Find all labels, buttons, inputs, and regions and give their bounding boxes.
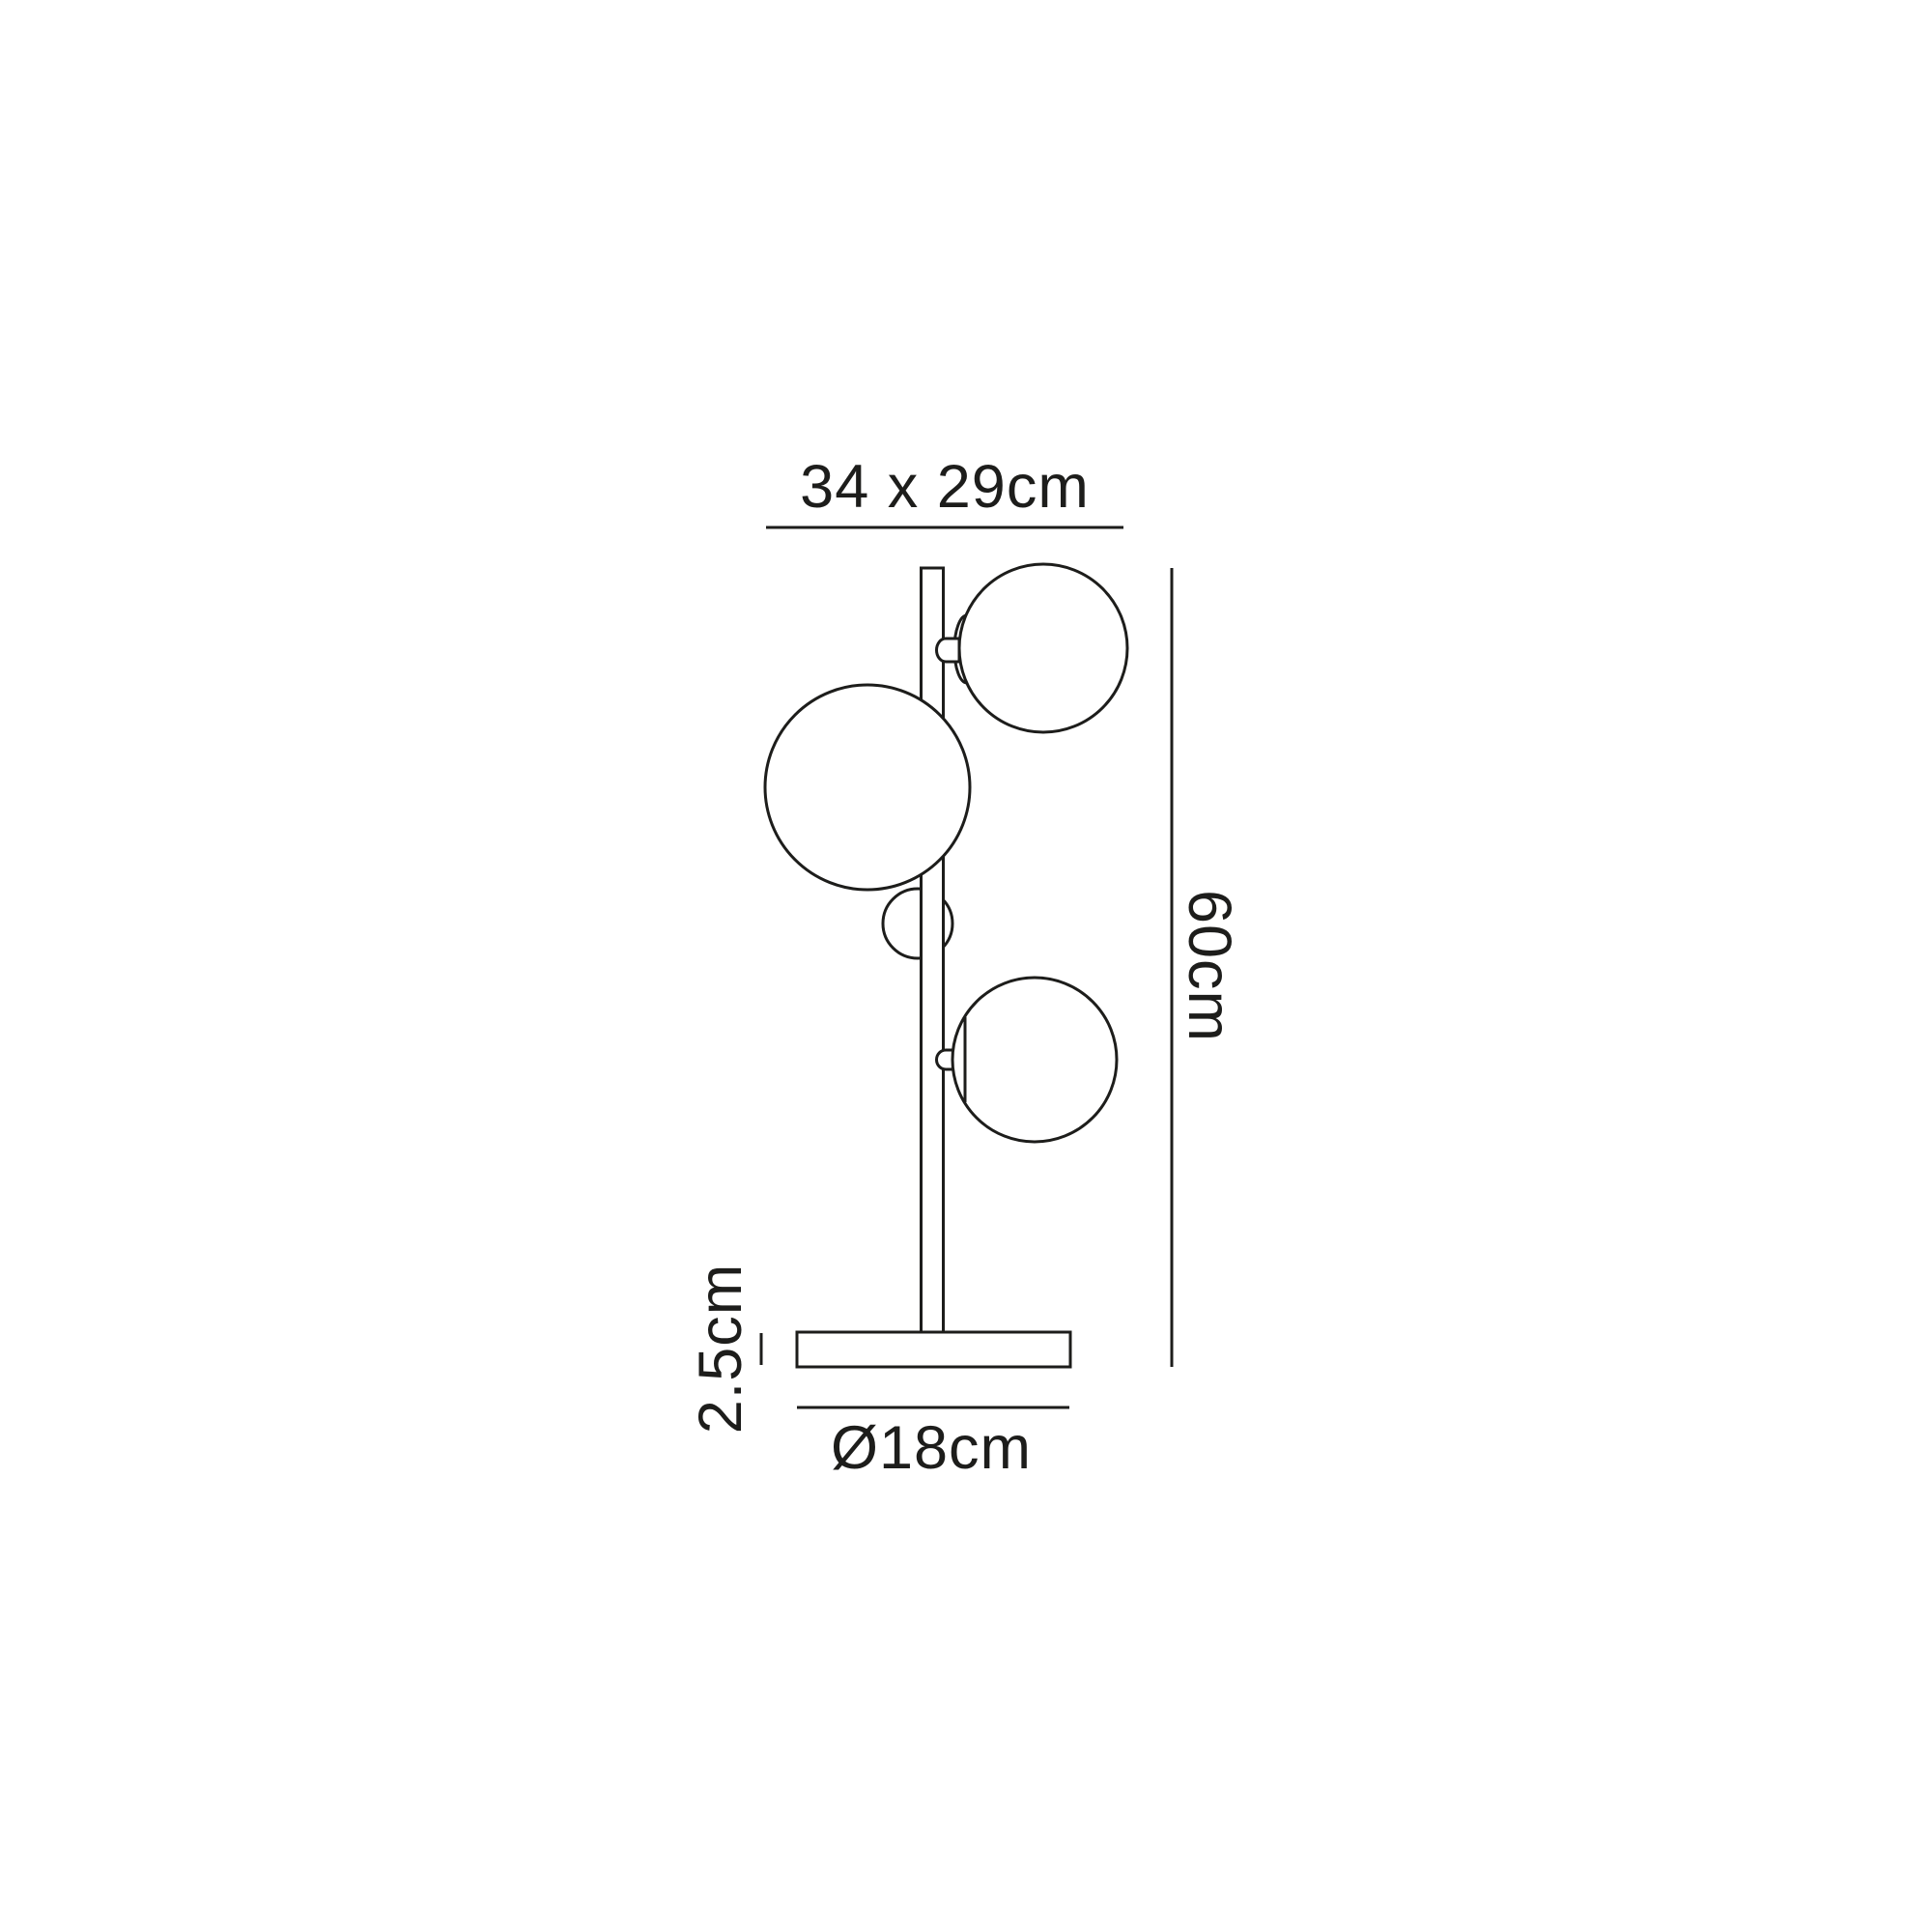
diameter-dimension-label: Ø18cm <box>831 1414 1032 1482</box>
diagram-canvas: 34 x 29cm 60cm 2.5cm Ø18cm <box>0 0 1932 1932</box>
top-globe-socket <box>937 639 959 662</box>
lamp-dimension-diagram: 34 x 29cm 60cm 2.5cm Ø18cm <box>0 0 1932 1932</box>
top-globe <box>959 564 1127 732</box>
dimension-labels: 34 x 29cm 60cm 2.5cm Ø18cm <box>687 453 1243 1482</box>
width-dimension-label: 34 x 29cm <box>800 453 1090 521</box>
bottom-globe <box>952 978 1117 1142</box>
height-dimension-label: 60cm <box>1176 890 1243 1042</box>
lamp-base <box>797 1332 1070 1367</box>
left-globe <box>765 685 970 890</box>
drawing-strokes <box>761 527 1172 1407</box>
base-height-label: 2.5cm <box>687 1264 754 1435</box>
lamp-stem <box>922 568 944 1332</box>
